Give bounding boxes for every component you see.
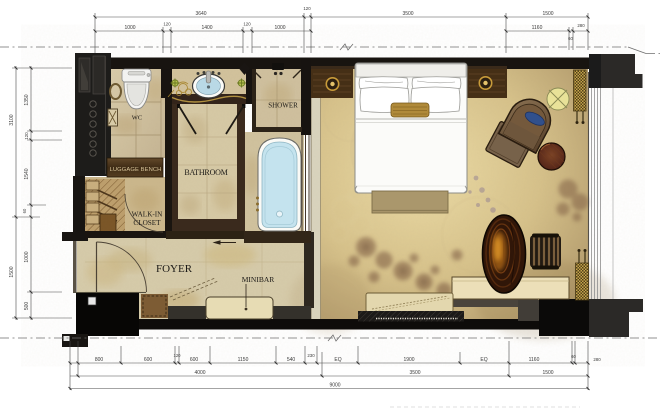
svg-text:1350: 1350	[24, 94, 30, 105]
svg-text:LUGGAGE BENCH: LUGGAGE BENCH	[110, 167, 162, 173]
svg-text:1500: 1500	[542, 11, 553, 17]
svg-text:540: 540	[287, 357, 296, 363]
svg-text:120: 120	[163, 22, 171, 27]
svg-text:3100: 3100	[9, 114, 15, 125]
svg-text:120: 120	[24, 132, 29, 140]
svg-text:500: 500	[24, 302, 30, 311]
svg-text:1500: 1500	[9, 266, 15, 277]
svg-text:3500: 3500	[409, 370, 420, 376]
svg-text:1160: 1160	[532, 25, 543, 31]
svg-text:1000: 1000	[274, 25, 285, 31]
svg-text:BATHROOM: BATHROOM	[184, 168, 227, 177]
svg-text:280: 280	[577, 23, 585, 28]
svg-text:CLOSET: CLOSET	[133, 219, 161, 227]
svg-text:3640: 3640	[195, 11, 206, 17]
svg-text:1500: 1500	[542, 370, 553, 376]
svg-text:1900: 1900	[403, 357, 414, 363]
svg-text:120: 120	[243, 22, 251, 27]
svg-text:1000: 1000	[24, 251, 30, 262]
svg-text:WALK-IN: WALK-IN	[132, 211, 164, 219]
svg-text:600: 600	[190, 357, 199, 363]
svg-text:FOYER: FOYER	[156, 263, 193, 275]
svg-text:EQ: EQ	[334, 357, 341, 363]
svg-text:1160: 1160	[529, 357, 540, 363]
svg-text:120: 120	[303, 6, 311, 11]
svg-text:1150: 1150	[238, 357, 249, 363]
svg-text:600: 600	[144, 357, 153, 363]
svg-text:230: 230	[307, 353, 315, 358]
svg-text:120: 120	[174, 353, 182, 358]
svg-text:3500: 3500	[402, 11, 413, 17]
svg-text:800: 800	[95, 357, 104, 363]
svg-text:MINIBAR: MINIBAR	[242, 275, 275, 284]
svg-text:60: 60	[568, 36, 573, 41]
svg-text:60: 60	[571, 354, 576, 359]
svg-text:1000: 1000	[124, 25, 135, 31]
svg-text:1540: 1540	[24, 168, 30, 179]
svg-text:9000: 9000	[329, 383, 340, 389]
svg-text:60: 60	[22, 208, 27, 213]
svg-text:WC: WC	[132, 115, 142, 122]
svg-text:EQ: EQ	[480, 357, 487, 363]
svg-text:280: 280	[593, 357, 601, 362]
svg-text:4000: 4000	[194, 370, 205, 376]
svg-text:SHOWER: SHOWER	[268, 102, 298, 110]
svg-text:1400: 1400	[201, 25, 212, 31]
